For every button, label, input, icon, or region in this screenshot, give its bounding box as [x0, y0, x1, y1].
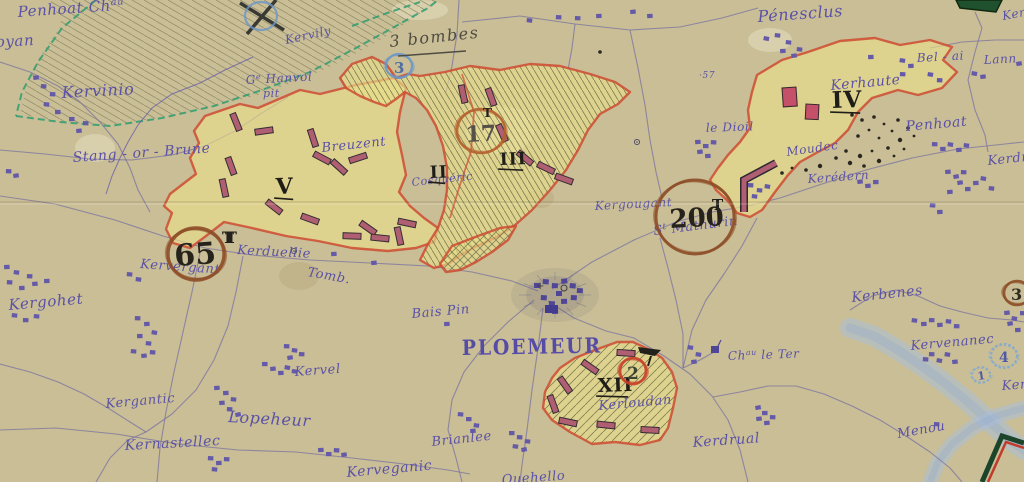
svg-text:65: 65 — [173, 236, 217, 274]
place-label-kerdr: Kerdr — [986, 150, 1024, 169]
place-label-brianlee: Brianlee — [430, 429, 493, 450]
pink-building — [782, 87, 797, 107]
place-label-ge-hanvol: Ge Hanvol — [245, 69, 312, 87]
place-label-oyan: oyan — [0, 31, 35, 51]
pink-building — [805, 104, 819, 120]
place-label-ploemeur: PLOEMEUR — [462, 333, 602, 360]
place-label-chau-le-ter: Chau le Ter — [728, 346, 801, 363]
svg-text:III: III — [499, 149, 527, 170]
ploemeur-town: + — [511, 268, 599, 322]
place-label-kerduellie: Kerduellie — [236, 243, 312, 262]
zone-numeral-iii: III — [497, 149, 527, 171]
circled-number-3: 3 — [1001, 281, 1024, 306]
t-flag-mark: T — [225, 228, 237, 247]
place-label-kervinio: Kervinio — [60, 79, 135, 102]
svg-text:II: II — [429, 162, 448, 183]
svg-text:3: 3 — [1011, 285, 1022, 304]
place-label-kernastellec: Kernastellec — [123, 433, 221, 454]
place-label-lopeheur: Lopeheur — [227, 407, 312, 430]
church-cross-icon: + — [536, 281, 544, 292]
svg-text:3: 3 — [394, 59, 404, 77]
chateau-icon — [711, 346, 719, 353]
zone-numeral-v: V — [273, 173, 294, 200]
svg-text:T: T — [483, 106, 492, 120]
place-label-kerveganic: Kerveganic — [345, 458, 433, 482]
circled-number-1: 1 — [969, 367, 993, 383]
svg-text:4: 4 — [999, 350, 1009, 366]
place-label-kervenanec: Kervenanec — [909, 332, 995, 354]
place-label-kerbenes: Kerbenes — [850, 283, 924, 307]
place-label-bais-pin: Bais Pin — [410, 302, 470, 322]
pencil-note: 3 bombes — [388, 23, 480, 51]
place-label-bel-ai: Bel - ai — [915, 49, 964, 66]
place-label-lann: Lann — [982, 51, 1017, 67]
place-label-kervel: Kervel — [293, 362, 341, 380]
place-label-ker: Ker — [1000, 377, 1024, 394]
svg-text:1: 1 — [977, 369, 986, 383]
green-corner-block — [956, 0, 1002, 12]
place-label-penhoat: Penhoat — [904, 114, 968, 135]
svg-text:IV: IV — [831, 86, 863, 114]
svg-text:17: 17 — [465, 120, 497, 148]
place-label-quehello: Quehello — [501, 469, 566, 482]
place-label-kergohet: Kergohet — [7, 289, 84, 314]
ploemeur-map: PLOEMEUR +Penhoat ChauoyanKervinioKervil… — [0, 0, 1024, 482]
place-label-kerdrual: Kerdrual — [691, 430, 760, 451]
zone-numeral-ii: II — [427, 162, 448, 184]
place-label-menou: Menou — [895, 419, 946, 442]
place-label-pit: pit — [263, 87, 280, 100]
t-flag-mark: T — [712, 196, 724, 214]
map-canvas: PLOEMEUR +Penhoat ChauoyanKervinioKervil… — [0, 0, 1024, 482]
place-label-57: ·57 — [699, 71, 715, 81]
place-label-le-dioil: le Dioil — [706, 119, 754, 135]
zone-numeral-iv: IV — [829, 86, 863, 114]
circled-number-4: 4 — [988, 344, 1021, 369]
svg-text:V: V — [274, 173, 294, 200]
place-label-ker: Ker — [1000, 5, 1024, 23]
svg-text:2: 2 — [627, 364, 639, 384]
place-label-p-nesclus: Pénesclus — [756, 1, 844, 26]
place-label-kergantic: Kergantic — [104, 391, 176, 412]
